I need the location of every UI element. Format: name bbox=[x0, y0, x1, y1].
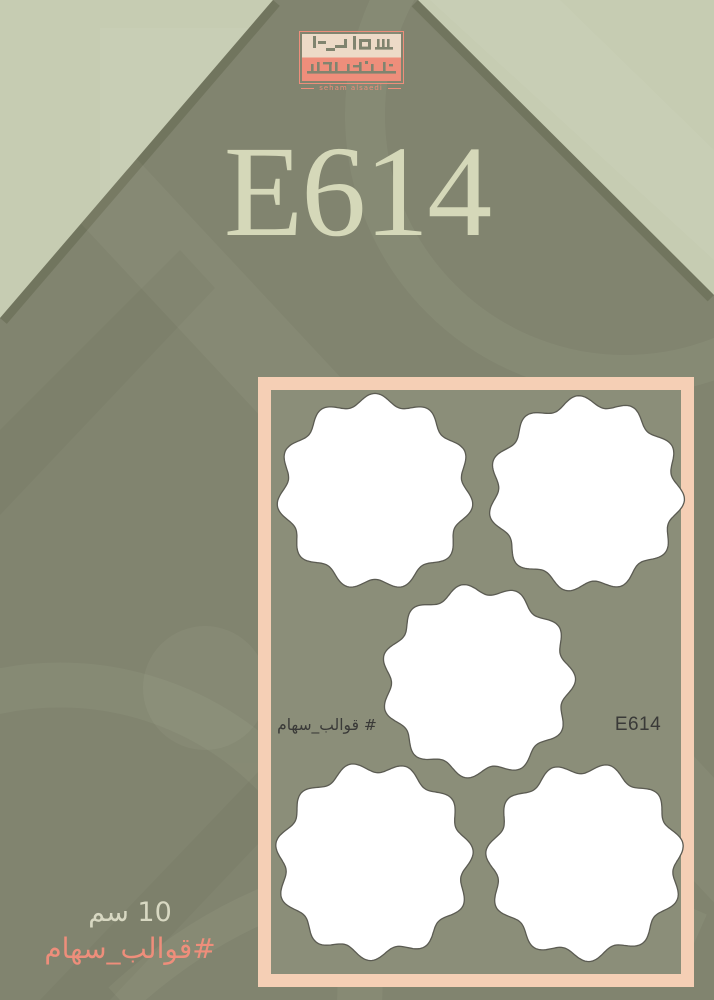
stencil-panel bbox=[258, 377, 694, 987]
brand-logo bbox=[299, 31, 404, 84]
stencil-code-label: E614 bbox=[611, 714, 665, 736]
stencil-panel-inner bbox=[271, 390, 681, 974]
poster-canvas: seham alsaedi E614 # قوالب_سهام E614 10 … bbox=[0, 0, 714, 1000]
product-code-title: E614 bbox=[0, 127, 714, 257]
brand-caption-row: seham alsaedi bbox=[291, 84, 411, 92]
size-label: 10 سم bbox=[28, 897, 232, 928]
logo-top-block bbox=[302, 34, 401, 58]
footer-hashtag: #قوالب_سهام bbox=[28, 932, 232, 965]
caption-dash-left bbox=[301, 88, 314, 89]
footer: 10 سم #قوالب_سهام bbox=[28, 897, 232, 965]
stencil-hashtag-label: # قوالب_سهام bbox=[271, 716, 383, 734]
logo-bottom-block bbox=[302, 58, 401, 82]
caption-dash-right bbox=[388, 88, 401, 89]
brand-caption: seham alsaedi bbox=[319, 84, 383, 92]
